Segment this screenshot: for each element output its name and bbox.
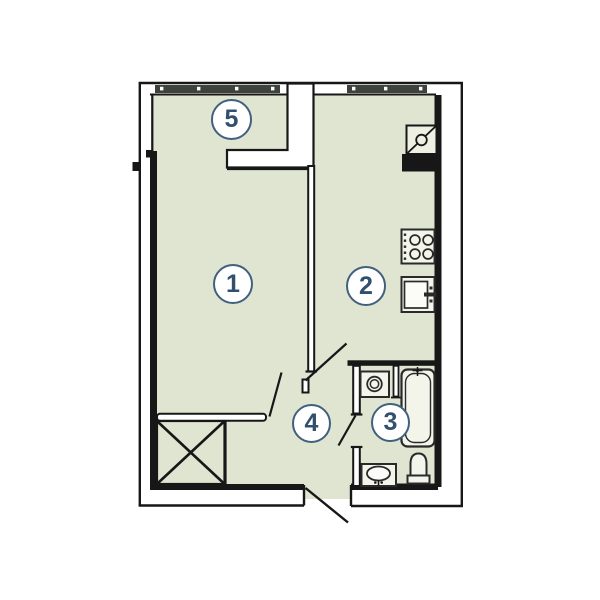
vent-shaft-icon xyxy=(402,126,438,172)
hall-partition-wall xyxy=(157,414,266,421)
bathtub-icon xyxy=(402,367,435,447)
room-label-kitchen: 2 xyxy=(346,266,386,306)
room-label-bathroom: 3 xyxy=(371,403,410,442)
floor-plan-canvas: 1 2 3 4 5 xyxy=(0,0,600,600)
kitchen-sink-icon xyxy=(402,277,437,312)
washing-machine-icon xyxy=(361,372,390,398)
balcony-window-icon xyxy=(155,85,280,93)
wardrobe-icon xyxy=(157,421,226,485)
floor-plan-drawing xyxy=(0,0,600,600)
washbasin-icon xyxy=(362,464,397,486)
room-label-hallway: 4 xyxy=(292,404,331,443)
room-label-living-room: 1 xyxy=(213,264,253,304)
kitchen-window-icon xyxy=(347,85,427,93)
room-label-balcony: 5 xyxy=(211,99,252,140)
stove-icon xyxy=(402,230,435,264)
toilet-icon xyxy=(408,454,430,484)
